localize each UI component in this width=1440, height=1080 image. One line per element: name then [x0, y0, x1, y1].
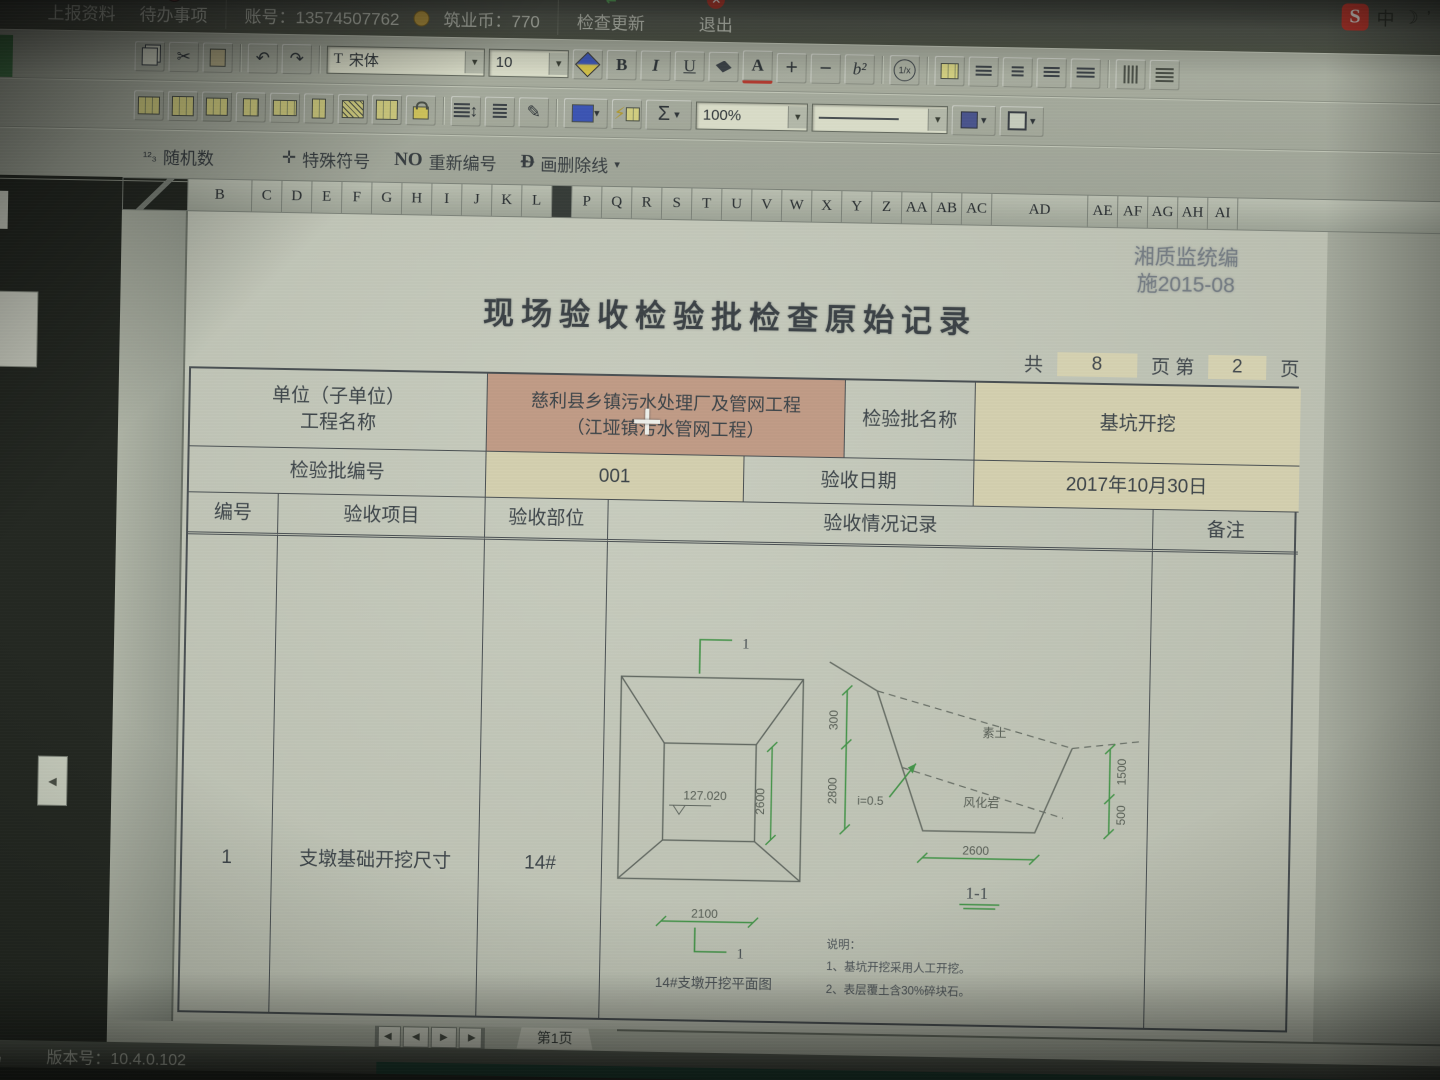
- random-number-label: 随机数: [163, 143, 214, 169]
- section-mark-bottom: 1: [736, 946, 744, 962]
- zoom-select[interactable]: 100% ▾: [696, 101, 808, 131]
- column-header[interactable]: X: [812, 190, 843, 224]
- column-header[interactable]: E: [312, 180, 343, 214]
- font-name-value: 宋体: [349, 49, 379, 71]
- status-left: 易: [0, 1043, 3, 1067]
- batch-no-value: 001: [599, 463, 631, 490]
- menu-update-label: 检查更新: [577, 8, 645, 34]
- font-size-value: 10: [496, 54, 513, 71]
- border-color-button[interactable]: ▾: [951, 105, 996, 136]
- section-dim-2600: 2600: [962, 843, 989, 857]
- font-tag-icon: T: [334, 51, 343, 68]
- menu-todo[interactable]: 待办事项: [127, 0, 220, 33]
- special-symbol-button[interactable]: ✛ 特殊符号: [272, 141, 381, 177]
- align-right-icon[interactable]: [1036, 57, 1067, 88]
- numbering-icon[interactable]: [485, 96, 516, 127]
- plan-dim-2600: 2600: [753, 788, 767, 815]
- header-remark-cell[interactable]: 备注: [1153, 510, 1299, 555]
- accept-date-label-cell[interactable]: 验收日期: [744, 456, 975, 506]
- split-cell-icon[interactable]: [236, 92, 267, 123]
- account-number: 账号：13574507762: [244, 2, 399, 30]
- undo-icon[interactable]: ↶: [247, 43, 278, 74]
- coin-balance: 筑业币：770: [443, 6, 540, 33]
- soil-layer-top-label: 素土: [982, 726, 1006, 740]
- section-dim-300: 300: [827, 710, 841, 731]
- ime-logo-icon[interactable]: S: [1341, 3, 1368, 30]
- coin-icon: [413, 10, 429, 26]
- header-no-cell[interactable]: 编号: [188, 492, 279, 536]
- decrease-size-button[interactable]: −: [810, 53, 841, 84]
- redo-icon[interactable]: ↷: [281, 43, 312, 74]
- lock-icon[interactable]: [406, 95, 437, 126]
- line-style-select[interactable]: ▾: [812, 103, 948, 133]
- pagination-page-value[interactable]: 2: [1208, 354, 1266, 379]
- plan-dim-2100: 2100: [691, 907, 718, 921]
- menu-exit[interactable]: ✕ 退出: [687, 0, 746, 42]
- pattern-fill-icon[interactable]: [338, 93, 369, 124]
- accept-date-label: 验收日期: [820, 467, 896, 494]
- stamp-line1: 湘质监统编: [1071, 242, 1301, 273]
- pagination-middle-label: 页 第: [1151, 352, 1195, 380]
- header-part-cell[interactable]: 验收部位: [485, 498, 609, 542]
- exit-icon: ✕: [707, 0, 725, 9]
- chevron-down-icon[interactable]: ▾: [788, 106, 807, 128]
- section-slope: i=0.5: [857, 794, 884, 808]
- renumber-label: 重新编号: [428, 148, 496, 174]
- chevron-down-icon[interactable]: ▾: [465, 51, 484, 73]
- data-item-cell[interactable]: 支墩基础开挖尺寸: [269, 536, 485, 1018]
- batch-name-value: 基坑开挖: [1099, 410, 1175, 437]
- chevron-down-icon[interactable]: ▾: [1030, 115, 1036, 128]
- plan-caption: 14#支墩开挖平面图: [606, 970, 821, 994]
- prev-sheet-button[interactable]: ◀: [403, 1026, 429, 1047]
- shading-color-button[interactable]: ▾: [999, 106, 1044, 137]
- punctuation-icon[interactable]: ’: [1426, 8, 1430, 29]
- align-left-icon[interactable]: [968, 56, 999, 87]
- section-dim-500: 500: [1114, 805, 1128, 826]
- accept-date-value-cell[interactable]: 2017年10月30日: [974, 461, 1300, 513]
- menu-upload-label: 上报资料: [47, 0, 115, 25]
- delete-row-icon[interactable]: [1115, 59, 1146, 90]
- desktop-fragment: [0, 291, 38, 368]
- insert-column-icon[interactable]: [270, 92, 301, 123]
- column-header[interactable]: U: [722, 188, 753, 222]
- chevron-down-icon[interactable]: ▾: [674, 108, 680, 121]
- column-header[interactable]: G: [372, 182, 403, 216]
- pagination-page-label: 页: [1280, 354, 1300, 381]
- screen-photo: ▲ 上报资料 待办事项 账号：13574507762 筑业币：770 ⇄ 检查更…: [0, 0, 1440, 1080]
- column-header[interactable]: B: [188, 178, 253, 212]
- column-header[interactable]: AI: [1208, 197, 1239, 231]
- column-header[interactable]: AA: [902, 191, 933, 225]
- menu-check-update[interactable]: ⇄ 检查更新: [565, 0, 658, 41]
- soil-layer-bottom-label: 风化岩: [963, 795, 999, 811]
- column-header[interactable]: AE: [1088, 195, 1119, 229]
- chevron-down-icon[interactable]: ▾: [614, 158, 620, 171]
- cut-icon[interactable]: ✂: [168, 41, 199, 72]
- data-no-cell[interactable]: 1: [179, 534, 278, 1014]
- form-stamp: 湘质监统编 施2015-08: [1071, 242, 1302, 300]
- fill-color-icon[interactable]: [708, 51, 739, 82]
- diagram-notes: 说明：1、基坑开挖采用人工开挖。2、表层覆土含30%碎块石。: [826, 934, 1137, 1007]
- special-symbol-label: 特殊符号: [302, 146, 370, 172]
- column-header[interactable]: [552, 185, 573, 218]
- column-header[interactable]: L: [522, 184, 553, 218]
- cell-cursor: [634, 408, 660, 434]
- bold-button[interactable]: B: [606, 49, 637, 80]
- batch-no-label-cell[interactable]: 检验批编号: [189, 446, 487, 497]
- header-part: 验收部位: [508, 505, 584, 532]
- chevron-down-icon[interactable]: ▾: [928, 108, 947, 130]
- underline-button[interactable]: U: [674, 51, 705, 82]
- column-header[interactable]: T: [692, 187, 723, 221]
- insert-picture-icon[interactable]: ▾: [564, 98, 609, 129]
- section-mark-top: 1: [742, 636, 750, 652]
- table-grid-icon[interactable]: [372, 94, 403, 125]
- italic-button[interactable]: I: [640, 50, 671, 81]
- header-item-cell[interactable]: 验收项目: [278, 494, 486, 540]
- unit-name-label-cell[interactable]: 单位（子单位） 工程名称: [190, 368, 488, 451]
- batch-name-label: 检验批名称: [862, 406, 957, 434]
- batch-no-label: 检验批编号: [289, 458, 384, 486]
- column-header[interactable]: W: [782, 189, 813, 223]
- delete-col-icon[interactable]: [1149, 59, 1180, 90]
- menu-separator: [558, 0, 560, 35]
- align-justify-icon[interactable]: [1070, 58, 1101, 89]
- sheet-margin: [1313, 232, 1440, 1044]
- font-color-button[interactable]: A: [742, 50, 773, 84]
- column-header[interactable]: I: [432, 183, 463, 217]
- column-header[interactable]: P: [572, 185, 603, 219]
- strikeline-button[interactable]: Ð 画删除线 ▾: [510, 145, 630, 181]
- ime-language-toggle[interactable]: 中: [1376, 4, 1394, 30]
- align-center-icon[interactable]: [1002, 57, 1033, 88]
- column-header[interactable]: C: [252, 179, 283, 213]
- column-header[interactable]: Q: [602, 186, 633, 220]
- copy-icon[interactable]: [135, 41, 166, 72]
- insert-cells-right-icon[interactable]: [134, 90, 165, 121]
- column-header[interactable]: AF: [1118, 195, 1149, 229]
- chevron-down-icon[interactable]: ▾: [549, 52, 568, 74]
- line-spacing-icon[interactable]: ↕: [451, 95, 482, 126]
- chevron-down-icon[interactable]: ▾: [981, 114, 987, 127]
- column-header[interactable]: R: [632, 186, 663, 220]
- font-size-select[interactable]: 10 ▾: [488, 48, 568, 77]
- section-diagram: 300 2800 i=0.5 素土 风化岩 1500 500 2600 1-1: [821, 644, 1148, 936]
- column-header[interactable]: V: [752, 189, 783, 223]
- data-part: 14#: [479, 850, 601, 878]
- superscript-button[interactable]: b²: [844, 54, 875, 85]
- eraser-icon[interactable]: ✎: [519, 97, 550, 128]
- header-item: 验收项目: [343, 502, 419, 529]
- desktop-fragment: [0, 35, 13, 77]
- renumber-button[interactable]: NO 重新编号: [384, 143, 507, 179]
- first-sheet-button[interactable]: ◀: [375, 1026, 401, 1047]
- sheet-tab[interactable]: 第1页: [517, 1027, 593, 1049]
- data-item: 支墩基础开挖尺寸: [272, 846, 478, 876]
- unit-name-value-cell[interactable]: 慈利县乡镇污水处理厂及管网工程 （江垭镇污水管网工程）: [487, 374, 846, 459]
- random-number-button[interactable]: ¹²₃ 随机数: [133, 138, 225, 174]
- font-select[interactable]: T 宋体 ▾: [326, 45, 484, 76]
- line-style-sample: [819, 116, 899, 119]
- version-label: 版本号：10.4.0.102: [46, 1044, 186, 1071]
- unit-label-line2: 工程名称: [300, 409, 376, 436]
- delete-cells-icon[interactable]: [202, 91, 233, 122]
- header-record: 验收情况记录: [823, 510, 937, 538]
- menu-upload[interactable]: ▲ 上报资料: [35, 0, 128, 31]
- menu-exit-label: 退出: [699, 11, 733, 37]
- insert-cells-down-icon[interactable]: [168, 90, 199, 121]
- unit-value-line2: （江垭镇污水管网工程）: [566, 414, 764, 444]
- sheet-nav: ◀ ◀ ▶ ▶: [375, 1026, 485, 1049]
- column-header[interactable]: Z: [872, 191, 903, 225]
- toolbar-area: ✂ ↶ ↷ T 宋体 ▾ 10 ▾ B I U A + − b²: [0, 29, 1440, 202]
- sum-button[interactable]: Σ▾: [646, 99, 693, 130]
- column-header[interactable]: AB: [932, 192, 963, 226]
- header-no: 编号: [214, 499, 252, 526]
- zoom-value: 100%: [703, 107, 742, 125]
- ime-bar: S 中 ☽ ’ ▦: [1341, 3, 1440, 32]
- chevron-down-icon[interactable]: ▾: [594, 107, 600, 120]
- scroll-left-arrow[interactable]: ◀: [37, 756, 68, 807]
- column-header[interactable]: AD: [992, 193, 1089, 228]
- stamp-line2: 施2015-08: [1071, 269, 1301, 300]
- strikeline-icon: Ð: [520, 151, 534, 173]
- format-painter-icon[interactable]: [572, 49, 603, 80]
- unit-label-line1: 单位（子单位）: [272, 382, 405, 410]
- pagination-total-label: 共: [1024, 350, 1044, 377]
- section-label: 1-1: [965, 884, 988, 903]
- column-header[interactable]: AC: [962, 192, 993, 226]
- paste-icon[interactable]: [202, 42, 233, 73]
- random-number-icon: ¹²₃: [143, 148, 157, 163]
- column-header[interactable]: H: [402, 182, 433, 216]
- plan-elevation: 127.020: [683, 788, 727, 803]
- header-remark: 备注: [1207, 517, 1245, 544]
- special-symbol-icon: ✛: [282, 148, 297, 168]
- fraction-button[interactable]: 1/x: [889, 55, 920, 86]
- data-no: 1: [182, 844, 271, 872]
- column-header[interactable]: AH: [1178, 196, 1209, 230]
- accept-date-value: 2017年10月30日: [1066, 472, 1208, 501]
- column-header-filler: [1238, 197, 1440, 234]
- increase-size-button[interactable]: +: [776, 52, 807, 83]
- pagination-total-value[interactable]: 8: [1057, 352, 1137, 377]
- column-header[interactable]: AG: [1148, 196, 1179, 230]
- batch-no-value-cell[interactable]: 001: [486, 452, 745, 503]
- select-all-corner[interactable]: [122, 177, 189, 211]
- autoformat-icon[interactable]: ⚡: [612, 98, 643, 129]
- column-header[interactable]: F: [342, 181, 373, 215]
- section-dim-1500: 1500: [1115, 758, 1129, 785]
- merge-down-icon[interactable]: [304, 93, 335, 124]
- desktop-fragment: [0, 191, 8, 229]
- menu-todo-label: 待办事项: [139, 0, 207, 26]
- plan-view-diagram: 1 1 127.020 2600 2100: [608, 626, 826, 964]
- renumber-icon: NO: [394, 149, 423, 172]
- batch-name-label-cell[interactable]: 检验批名称: [845, 380, 976, 460]
- last-sheet-button[interactable]: ▶: [459, 1027, 485, 1048]
- strikeline-label: 画删除线: [540, 150, 608, 176]
- column-header[interactable]: S: [662, 187, 693, 221]
- merge-align-icon[interactable]: [934, 55, 965, 86]
- column-header[interactable]: Y: [842, 190, 873, 224]
- batch-name-value-cell[interactable]: 基坑开挖: [974, 383, 1300, 467]
- section-dim-2800: 2800: [825, 777, 839, 804]
- column-header[interactable]: J: [462, 183, 493, 217]
- column-header[interactable]: D: [282, 180, 313, 214]
- data-remark-cell[interactable]: [1144, 552, 1298, 1033]
- column-header[interactable]: K: [492, 184, 523, 218]
- moon-icon[interactable]: ☽: [1402, 7, 1419, 28]
- update-icon: ⇄: [606, 0, 617, 7]
- data-part-cell[interactable]: 14#: [476, 540, 608, 1020]
- menu-separator: [225, 0, 227, 29]
- next-sheet-button[interactable]: ▶: [431, 1027, 457, 1048]
